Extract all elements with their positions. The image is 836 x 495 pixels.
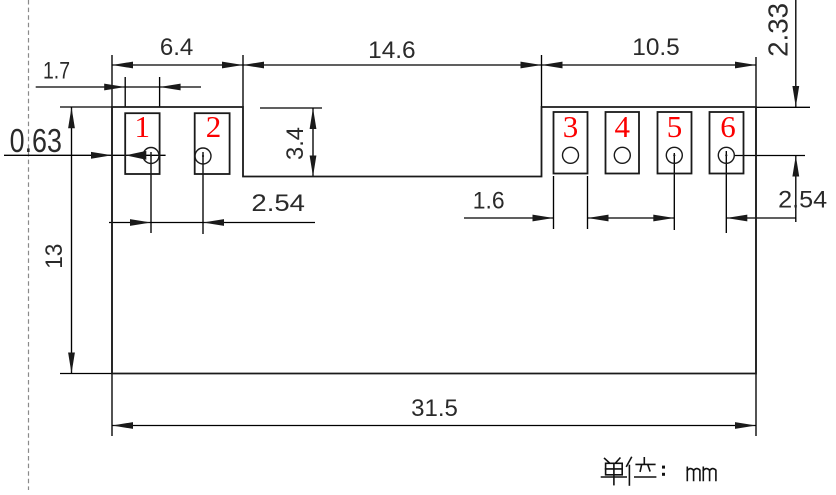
svg-text:1.6: 1.6 [473,188,505,215]
svg-text:0.63: 0.63 [10,122,62,159]
svg-text:13: 13 [41,244,68,269]
svg-text:2.33: 2.33 [763,3,794,57]
svg-text:6.4: 6.4 [160,34,194,61]
svg-text:4: 4 [615,109,631,144]
svg-text:31.5: 31.5 [411,395,458,422]
svg-text:10.5: 10.5 [632,34,680,61]
svg-text:6: 6 [720,109,736,144]
svg-text:2.54: 2.54 [778,187,827,214]
svg-text:1: 1 [135,109,151,144]
svg-text:3.4: 3.4 [282,127,309,160]
svg-text:2.54: 2.54 [251,190,305,217]
svg-text:5: 5 [667,109,683,144]
svg-text:3: 3 [563,109,579,144]
svg-text:1.7: 1.7 [43,57,70,84]
svg-text:2: 2 [206,109,222,144]
svg-text:14.6: 14.6 [368,37,416,64]
